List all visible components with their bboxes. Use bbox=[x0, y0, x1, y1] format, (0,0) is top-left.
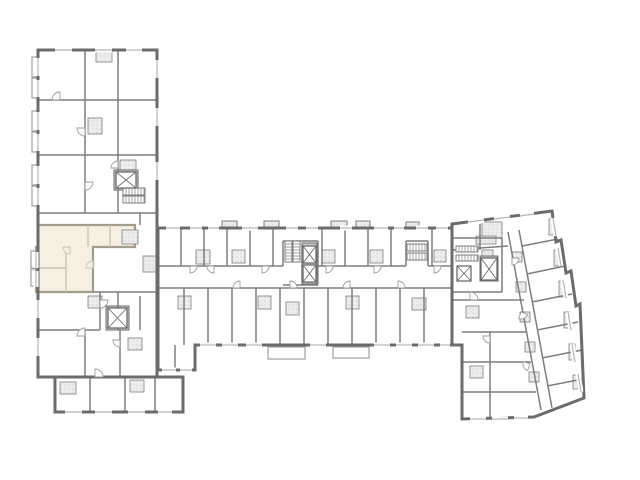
hatch-room bbox=[232, 250, 245, 263]
hatch-room bbox=[130, 380, 144, 392]
hatch-room bbox=[88, 118, 102, 134]
hatch-room bbox=[60, 382, 76, 394]
hatch-room bbox=[122, 230, 138, 244]
hatch-room bbox=[470, 366, 483, 378]
floorplan-page bbox=[0, 0, 640, 480]
stairs-treads-icon bbox=[126, 188, 144, 195]
hatch-room bbox=[476, 236, 496, 244]
stairs-treads-icon bbox=[126, 196, 144, 203]
stairs-treads-icon bbox=[459, 255, 477, 261]
floorplan-drawing bbox=[0, 0, 640, 480]
hatch-room bbox=[196, 250, 210, 264]
hatch-room bbox=[434, 250, 446, 262]
hatch-room bbox=[466, 306, 479, 318]
balcony bbox=[268, 347, 305, 359]
hatch-room bbox=[286, 302, 299, 315]
hatch-room bbox=[370, 250, 383, 263]
balcony bbox=[333, 347, 369, 358]
hatch-room bbox=[96, 52, 112, 62]
hatch-room bbox=[128, 338, 142, 350]
hatch-room bbox=[258, 296, 271, 309]
hatch-room bbox=[322, 250, 335, 263]
stairs-treads-icon bbox=[459, 246, 477, 252]
